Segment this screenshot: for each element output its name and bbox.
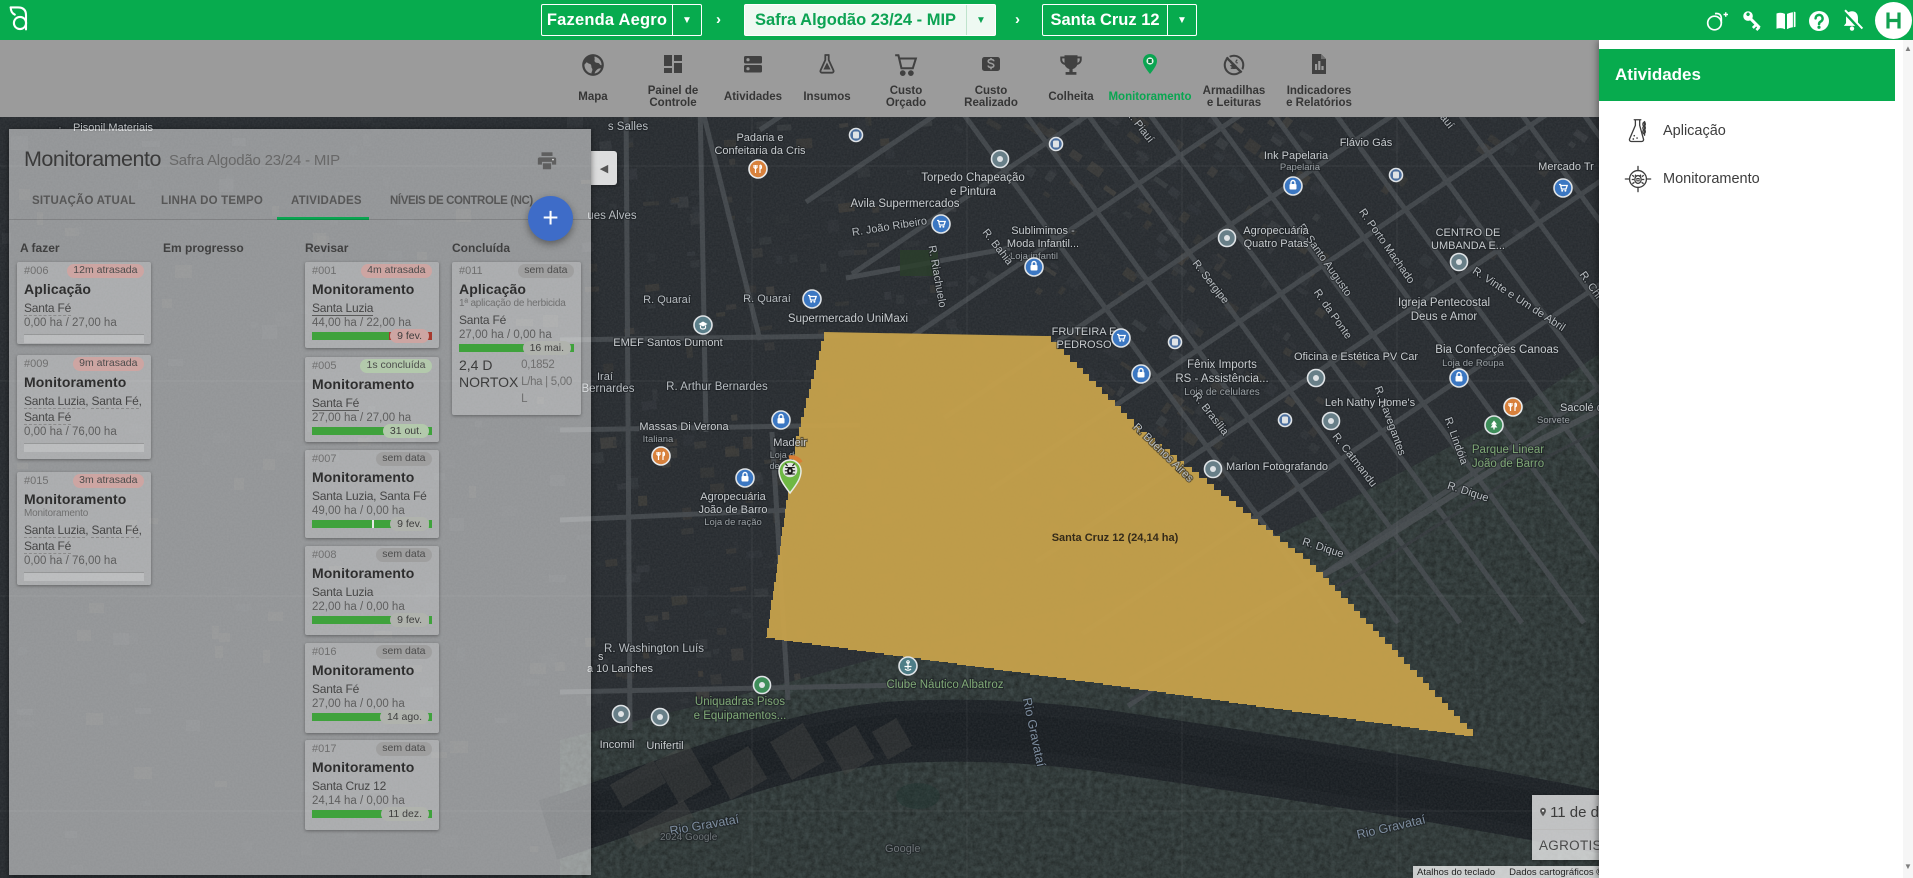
svg-text:e Pintura: e Pintura	[950, 186, 997, 198]
svg-text:Confeitaria da Cris: Confeitaria da Cris	[714, 145, 806, 157]
svg-text:Supermercado UniMaxi: Supermercado UniMaxi	[788, 313, 908, 325]
svg-text:Iraí: Iraí	[597, 371, 613, 383]
svg-text:Bia Confecções Canoas: Bia Confecções Canoas	[1435, 344, 1559, 356]
svg-text:Flávio Gás: Flávio Gás	[1340, 137, 1393, 149]
svg-text:e Equipamentos...: e Equipamentos...	[694, 710, 787, 722]
svg-text:RS - Assistência...: RS - Assistência...	[1175, 373, 1268, 385]
svg-text:ues Alves: ues Alves	[587, 210, 636, 222]
svg-text:Papelaria: Papelaria	[1280, 162, 1321, 173]
svg-text:Agropecuária: Agropecuária	[700, 491, 766, 503]
svg-text:FRUTEIRA E: FRUTEIRA E	[1052, 326, 1117, 338]
svg-text:Fênix Imports: Fênix Imports	[1187, 359, 1257, 371]
svg-text:Oficina e Estética PV Car: Oficina e Estética PV Car	[1294, 351, 1418, 363]
svg-text:R. Quaraí: R. Quaraí	[643, 294, 691, 306]
svg-text:2024 Google: 2024 Google	[660, 832, 718, 843]
svg-text:João de Barro: João de Barro	[698, 504, 767, 516]
svg-text:Unifertil: Unifertil	[646, 740, 683, 752]
svg-text:Madeir: Madeir	[773, 437, 807, 449]
svg-text:a 10 Lanches: a 10 Lanches	[587, 663, 654, 675]
svg-text:Moda Infantil...: Moda Infantil...	[1007, 238, 1079, 250]
svg-text:João de Barro: João de Barro	[1472, 458, 1544, 470]
svg-text:R. Arthur Bernardes: R. Arthur Bernardes	[666, 381, 768, 393]
svg-text:R. Quaraí: R. Quaraí	[743, 293, 791, 305]
svg-text:Massas Di Verona: Massas Di Verona	[639, 421, 729, 433]
svg-text:s Salles: s Salles	[608, 121, 649, 133]
svg-text:Deus e Amor: Deus e Amor	[1411, 311, 1478, 323]
svg-text:s: s	[598, 651, 604, 663]
svg-text:Santa Cruz 12 (24,14 ha): Santa Cruz 12 (24,14 ha)	[1052, 532, 1179, 544]
svg-text:CENTRO DE: CENTRO DE	[1436, 227, 1501, 239]
svg-text:Agropecuária: Agropecuária	[1243, 225, 1309, 237]
svg-text:Incomil: Incomil	[600, 739, 635, 751]
svg-text:Padaria e: Padaria e	[736, 132, 783, 144]
svg-text:EMEF Santos Dumont: EMEF Santos Dumont	[613, 337, 722, 349]
svg-text:Uniquadras Pisos: Uniquadras Pisos	[695, 696, 785, 708]
svg-text:Igreja Pentecostal: Igreja Pentecostal	[1398, 297, 1490, 309]
svg-text:Avila Supermercados: Avila Supermercados	[850, 198, 959, 210]
svg-text:Leh Nathy Home's: Leh Nathy Home's	[1325, 397, 1416, 409]
svg-text:Clube Náutico Albatroz: Clube Náutico Albatroz	[887, 679, 1004, 691]
svg-text:Sorvete: Sorvete	[1537, 415, 1570, 426]
svg-text:Loja de ração: Loja de ração	[704, 517, 762, 528]
svg-text:Mercado Tr: Mercado Tr	[1538, 161, 1594, 173]
svg-text:Torpedo Chapeação: Torpedo Chapeação	[921, 172, 1025, 184]
svg-text:Ink Papelaria: Ink Papelaria	[1264, 150, 1329, 162]
svg-text:PEDROSO: PEDROSO	[1056, 339, 1111, 351]
svg-text:Marlon Fotografando: Marlon Fotografando	[1226, 461, 1328, 473]
svg-text:Google: Google	[885, 843, 920, 855]
svg-text:Parque Linear: Parque Linear	[1472, 444, 1544, 456]
svg-text:UMBANDA E...: UMBANDA E...	[1431, 240, 1505, 252]
svg-text:Quatro Patas: Quatro Patas	[1244, 238, 1309, 250]
svg-text:Loja de Roupa: Loja de Roupa	[1442, 358, 1505, 369]
svg-text:R. Washington Luís: R. Washington Luís	[604, 643, 704, 655]
svg-text:Italiana: Italiana	[643, 434, 674, 445]
svg-text:Sublimimos -: Sublimimos -	[1011, 225, 1075, 237]
